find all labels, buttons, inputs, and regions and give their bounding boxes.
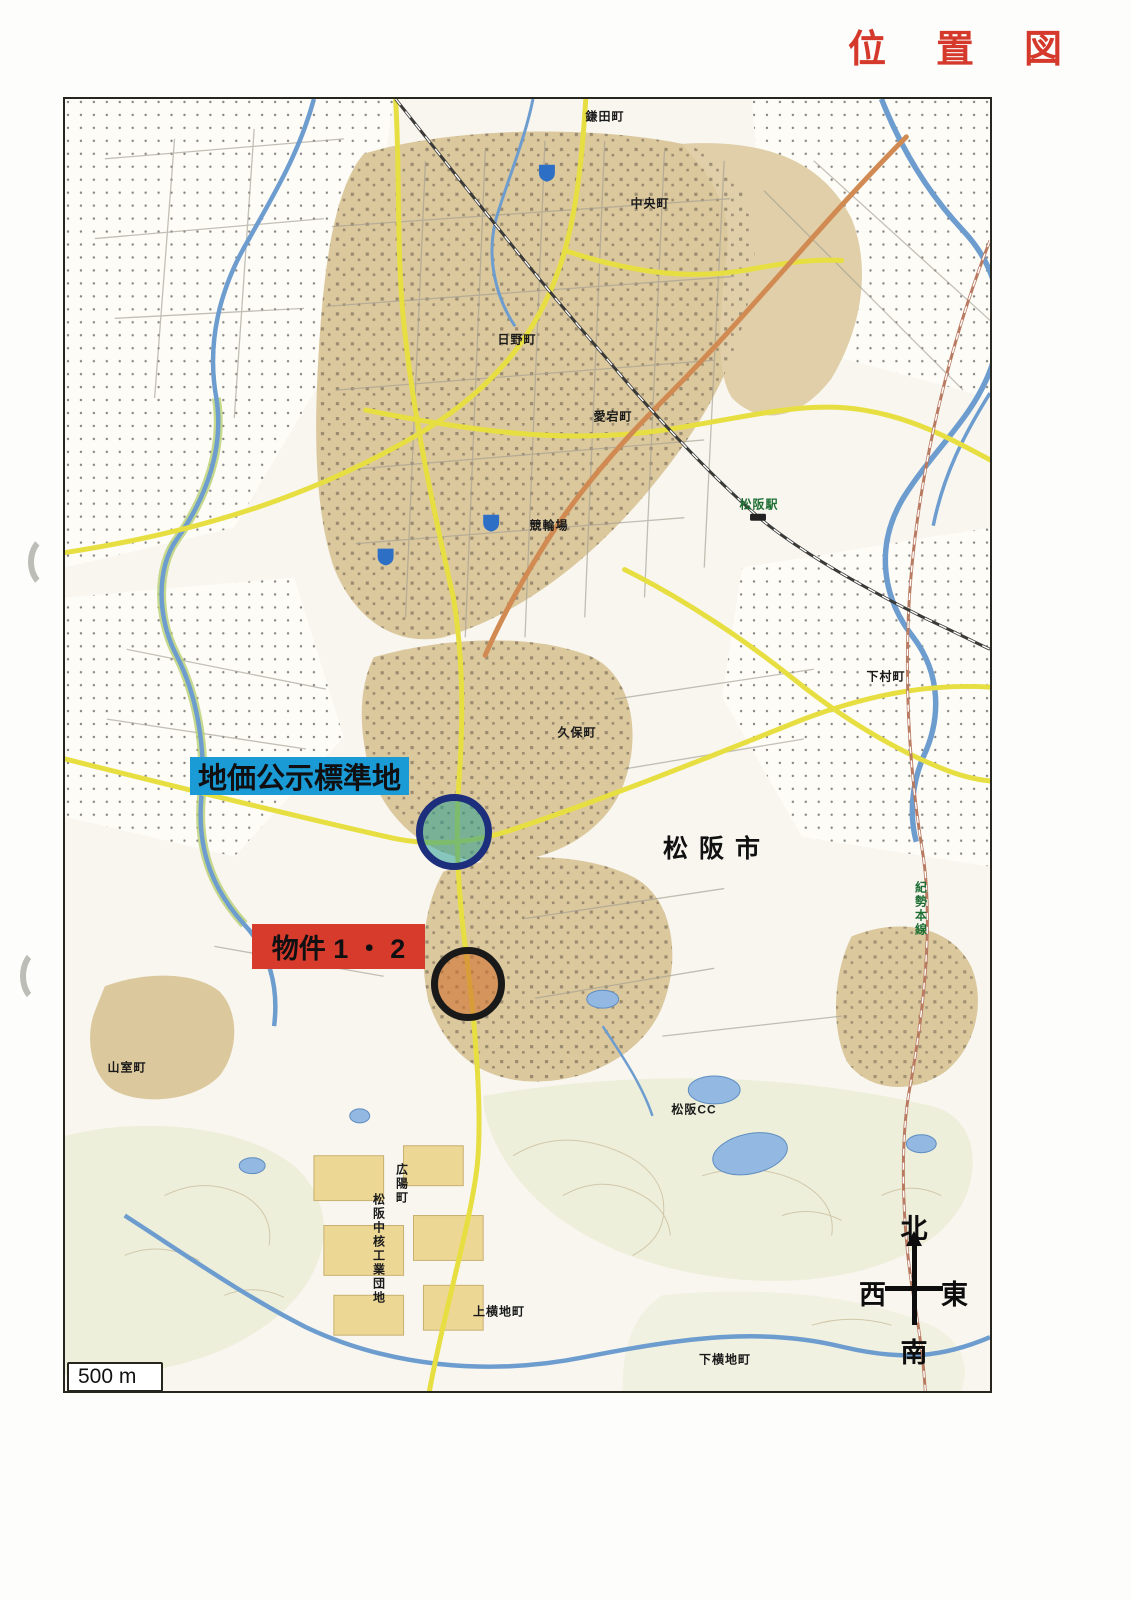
compass-east-label: 東 <box>941 1273 968 1312</box>
scale-bar: 500 m <box>67 1362 163 1392</box>
station-symbol <box>750 514 766 521</box>
compass-south-label: 南 <box>901 1331 928 1370</box>
place-label: 山室町 <box>107 1059 146 1076</box>
station-label: 松阪駅 <box>739 496 778 513</box>
place-label: 日野町 <box>497 331 536 348</box>
property-label: 物件 1 ・ 2 <box>252 924 425 969</box>
place-label: 松阪中核工業団地 <box>371 1193 388 1305</box>
place-label: 中央町 <box>630 195 669 212</box>
place-label: 競輪場 <box>529 517 568 534</box>
standard-site-label: 地価公示標準地 <box>190 757 409 795</box>
city-name-label: 松阪市 <box>663 829 771 865</box>
place-label: 鎌田町 <box>585 108 624 125</box>
map-frame: 鎌田町 中央町 日野町 愛宕町 競輪場 松阪駅 下村町 久保町 紀勢本線 山室町… <box>63 97 992 1393</box>
place-label: 広陽町 <box>394 1163 411 1205</box>
place-label: 下村町 <box>866 668 905 685</box>
hole-punch-mark <box>28 534 72 590</box>
standard-site-marker <box>416 794 492 870</box>
property-marker <box>431 947 505 1021</box>
hole-punch-mark <box>20 948 60 1004</box>
compass-horizontal-line <box>885 1286 943 1291</box>
compass-west-label: 西 <box>859 1273 886 1312</box>
place-label: 久保町 <box>557 724 596 741</box>
place-label: 下横地町 <box>699 1351 751 1368</box>
scanned-document-page: 位置図 <box>0 0 1131 1600</box>
compass-rose: 北 南 西 東 <box>841 1207 987 1369</box>
place-label: 松阪CC <box>671 1101 716 1118</box>
topographic-map-art <box>65 99 990 1391</box>
page-title: 位置図 <box>848 18 1112 73</box>
rail-line-label: 紀勢本線 <box>913 881 930 937</box>
compass-vertical-line <box>912 1243 917 1325</box>
place-label: 上横地町 <box>473 1303 525 1320</box>
place-label: 愛宕町 <box>593 408 632 425</box>
